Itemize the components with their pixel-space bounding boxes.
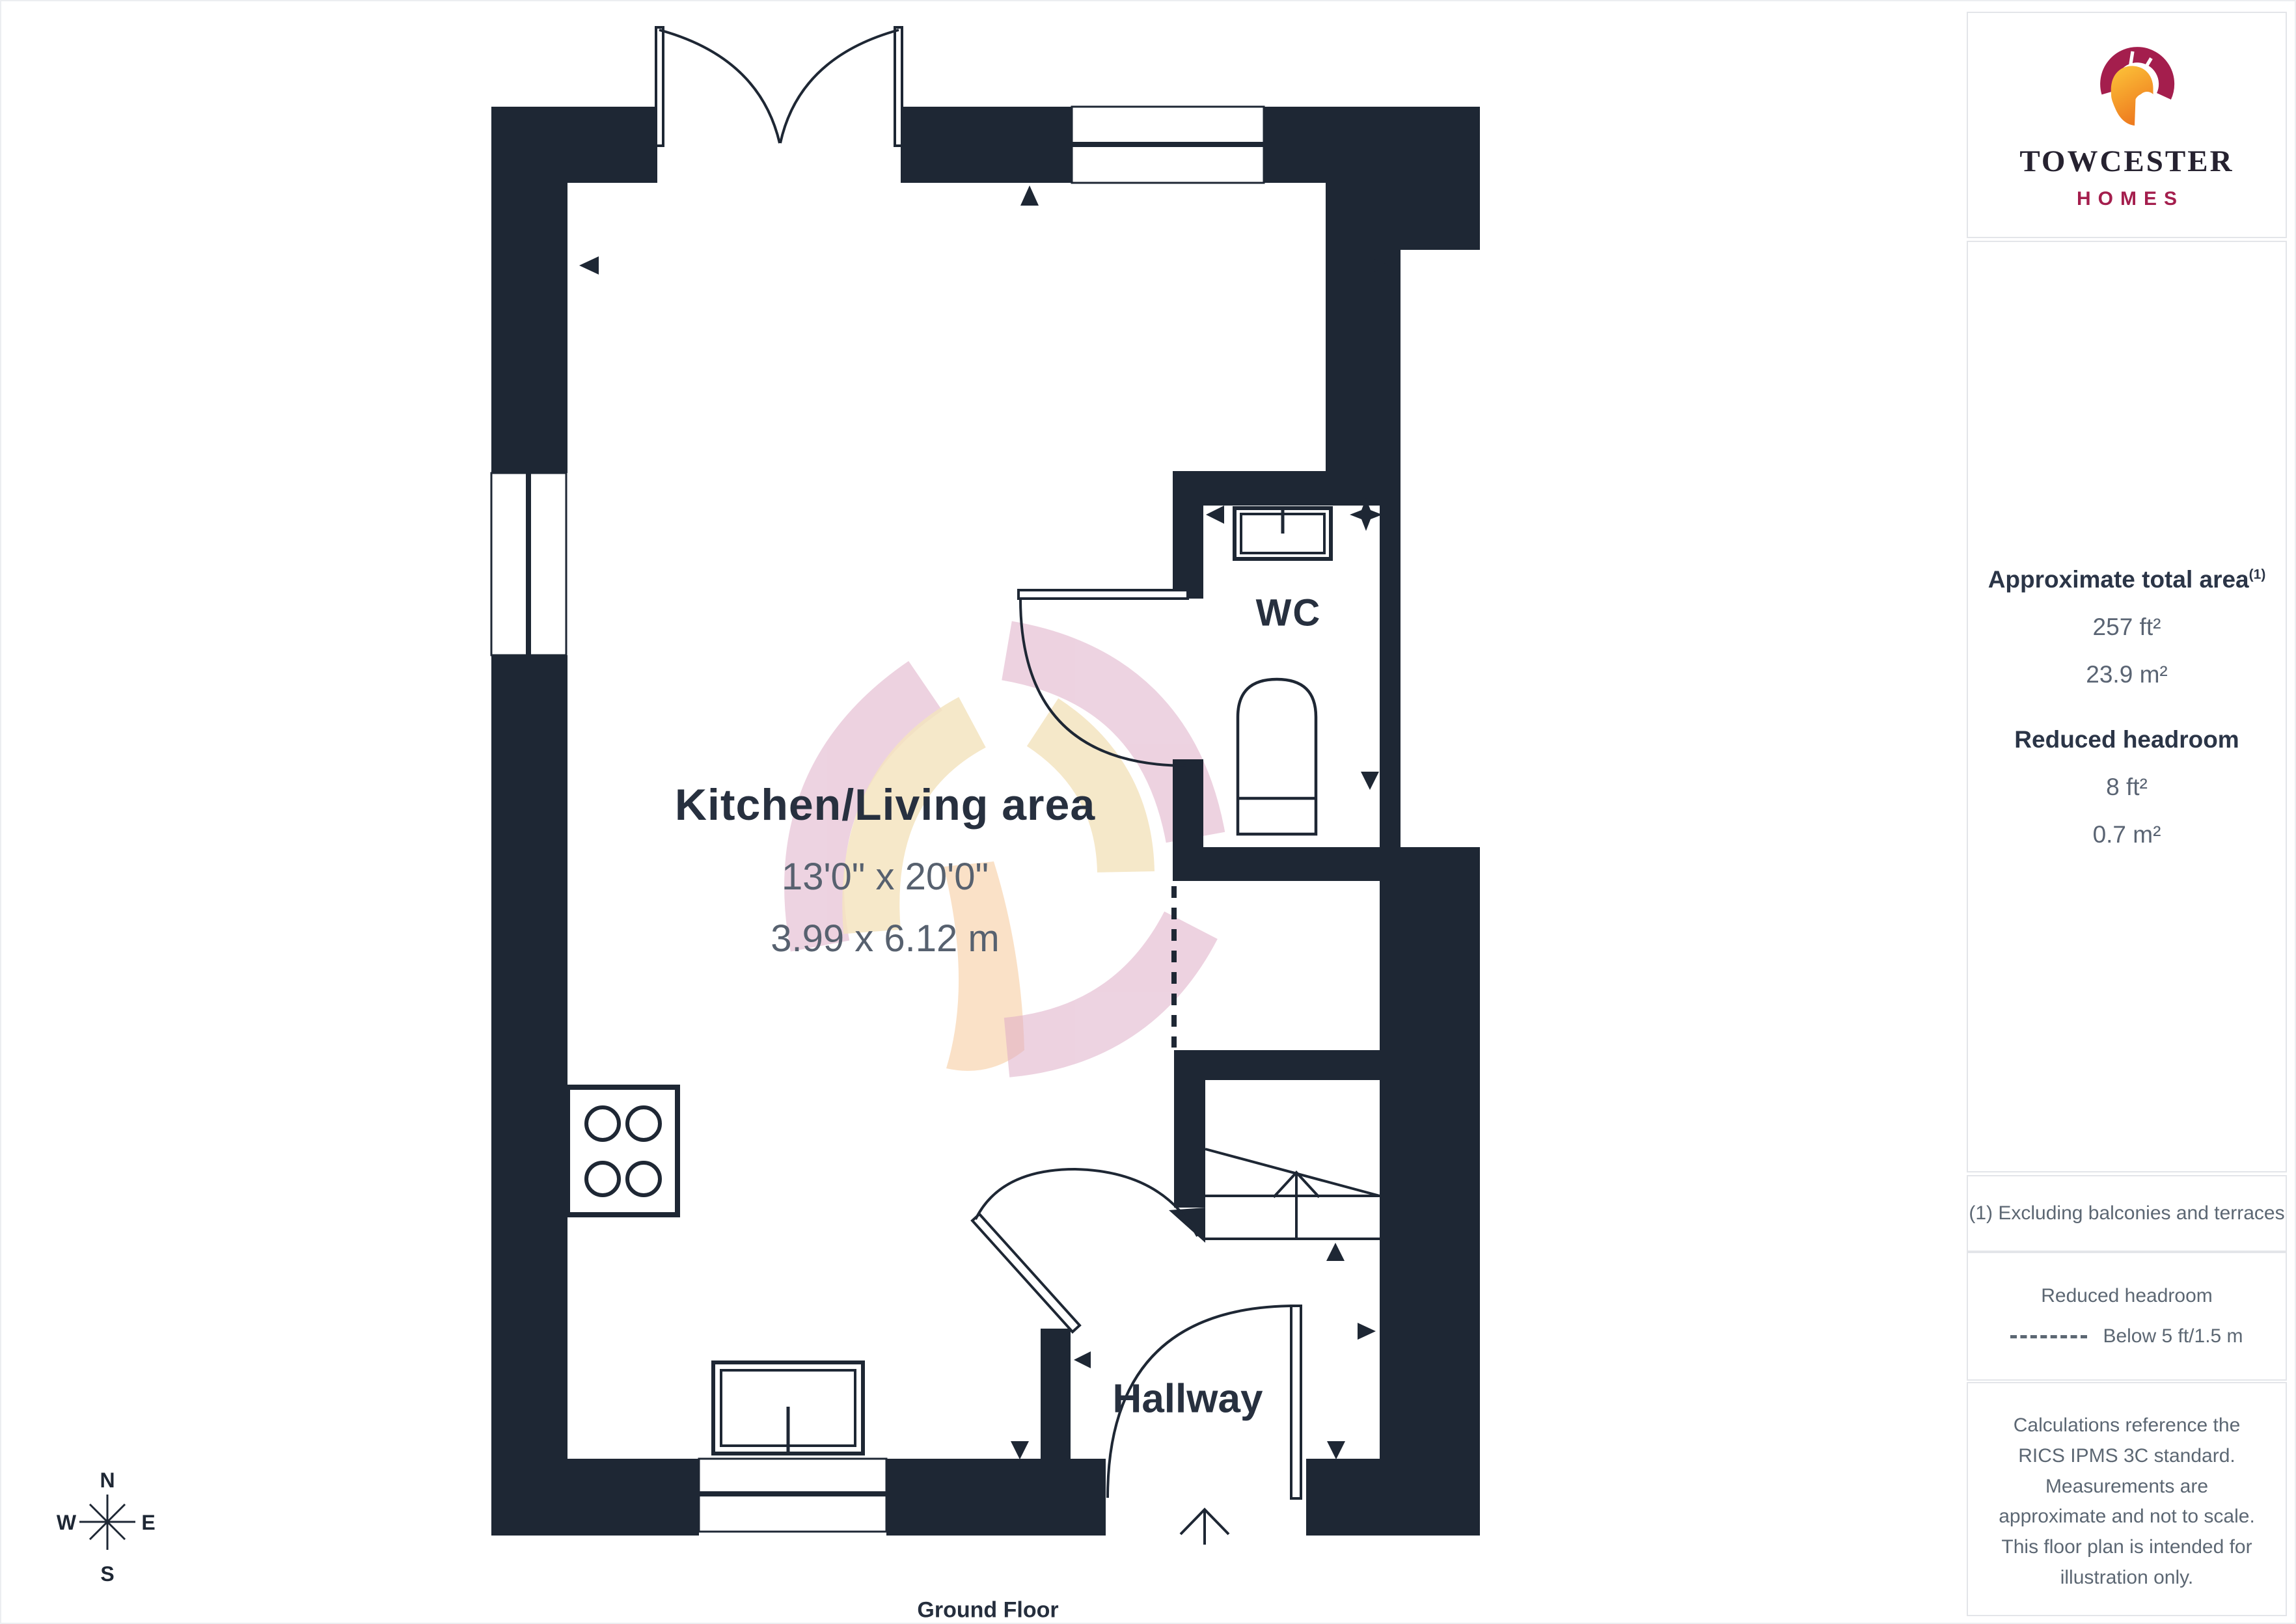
headroom-metric: 0.7 m² bbox=[1968, 821, 2286, 848]
arrow-left-icon bbox=[579, 256, 599, 275]
window-bottom bbox=[699, 1459, 886, 1532]
compass-west-label: W bbox=[57, 1511, 77, 1534]
dashed-line-icon bbox=[2010, 1335, 2087, 1338]
compass-north-label: N bbox=[100, 1468, 115, 1492]
area-imperial: 257 ft² bbox=[1968, 614, 2286, 641]
hallway-label: Hallway bbox=[1113, 1376, 1263, 1422]
fixtures bbox=[567, 508, 1331, 1454]
room-dims-imperial: 13'0" x 20'0" bbox=[675, 855, 1095, 899]
staircase bbox=[1205, 1149, 1380, 1239]
floor-title: Ground Floor bbox=[917, 1598, 1058, 1623]
footnote-text: (1) Excluding balconies and terraces bbox=[1969, 1202, 2284, 1225]
disclaimer-text: Calculations reference the RICS IPMS 3C … bbox=[1990, 1411, 2263, 1593]
legend-box: Reduced headroom Below 5 ft/1.5 m bbox=[1967, 1252, 2287, 1381]
arrow-down-icon bbox=[1011, 1441, 1029, 1459]
brand-subtitle: HOMES bbox=[2070, 188, 2184, 210]
arrow-down-icon bbox=[1361, 772, 1379, 790]
kitchen-sink-icon bbox=[713, 1362, 863, 1454]
window-top bbox=[1072, 107, 1264, 183]
window-left bbox=[491, 473, 566, 655]
french-doors bbox=[656, 27, 902, 146]
footnote-marker: (1) bbox=[2249, 567, 2266, 582]
headroom-imperial: 8 ft² bbox=[1968, 774, 2286, 801]
area-summary-box: Approximate total area(1) 257 ft² 23.9 m… bbox=[1967, 241, 2287, 1172]
brand-name: TOWCESTER bbox=[2019, 144, 2234, 179]
area-title: Approximate total area(1) bbox=[1968, 566, 2286, 593]
toilet-icon bbox=[1238, 679, 1316, 834]
arrow-up-icon bbox=[1326, 1243, 1345, 1261]
arrow-right-icon bbox=[1358, 1323, 1376, 1340]
compass-rose-icon: N S W E bbox=[57, 1468, 156, 1586]
footnote-box: (1) Excluding balconies and terraces bbox=[1967, 1175, 2287, 1252]
headroom-title: Reduced headroom bbox=[1968, 726, 2286, 753]
towcester-logo-box: TOWCESTER HOMES bbox=[1967, 12, 2287, 238]
floorplan-page: N S W E Kitchen/Living area 13'0" x 20'0… bbox=[0, 0, 2296, 1624]
towcester-helmet-icon bbox=[2078, 40, 2176, 137]
area-metric: 23.9 m² bbox=[1968, 661, 2286, 688]
arrow-down-icon bbox=[1327, 1441, 1345, 1459]
kitchen-living-label: Kitchen/Living area 13'0" x 20'0" 3.99 x… bbox=[675, 779, 1095, 960]
arrow-left-icon bbox=[1206, 506, 1224, 524]
wc-sink-icon bbox=[1235, 508, 1331, 559]
arrow-left-icon bbox=[1074, 1351, 1091, 1368]
entrance-arrow-icon bbox=[1181, 1509, 1229, 1545]
compass-south-label: S bbox=[100, 1562, 114, 1586]
kitchen-hallway-door bbox=[972, 1169, 1197, 1332]
compass-east-label: E bbox=[141, 1511, 155, 1534]
disclaimer-box: Calculations reference the RICS IPMS 3C … bbox=[1967, 1382, 2287, 1616]
hob-icon bbox=[567, 1087, 677, 1215]
info-sidebar: TOWCESTER HOMES Approximate total area(1… bbox=[1967, 1, 2288, 1624]
room-dims-metric: 3.99 x 6.12 m bbox=[675, 917, 1095, 960]
room-name: Kitchen/Living area bbox=[675, 779, 1095, 830]
legend-item: Below 5 ft/1.5 m bbox=[2103, 1325, 2243, 1347]
arrow-up-icon bbox=[1020, 185, 1039, 206]
wc-label: WC bbox=[1256, 591, 1322, 635]
legend-title: Reduced headroom bbox=[2041, 1285, 2213, 1307]
